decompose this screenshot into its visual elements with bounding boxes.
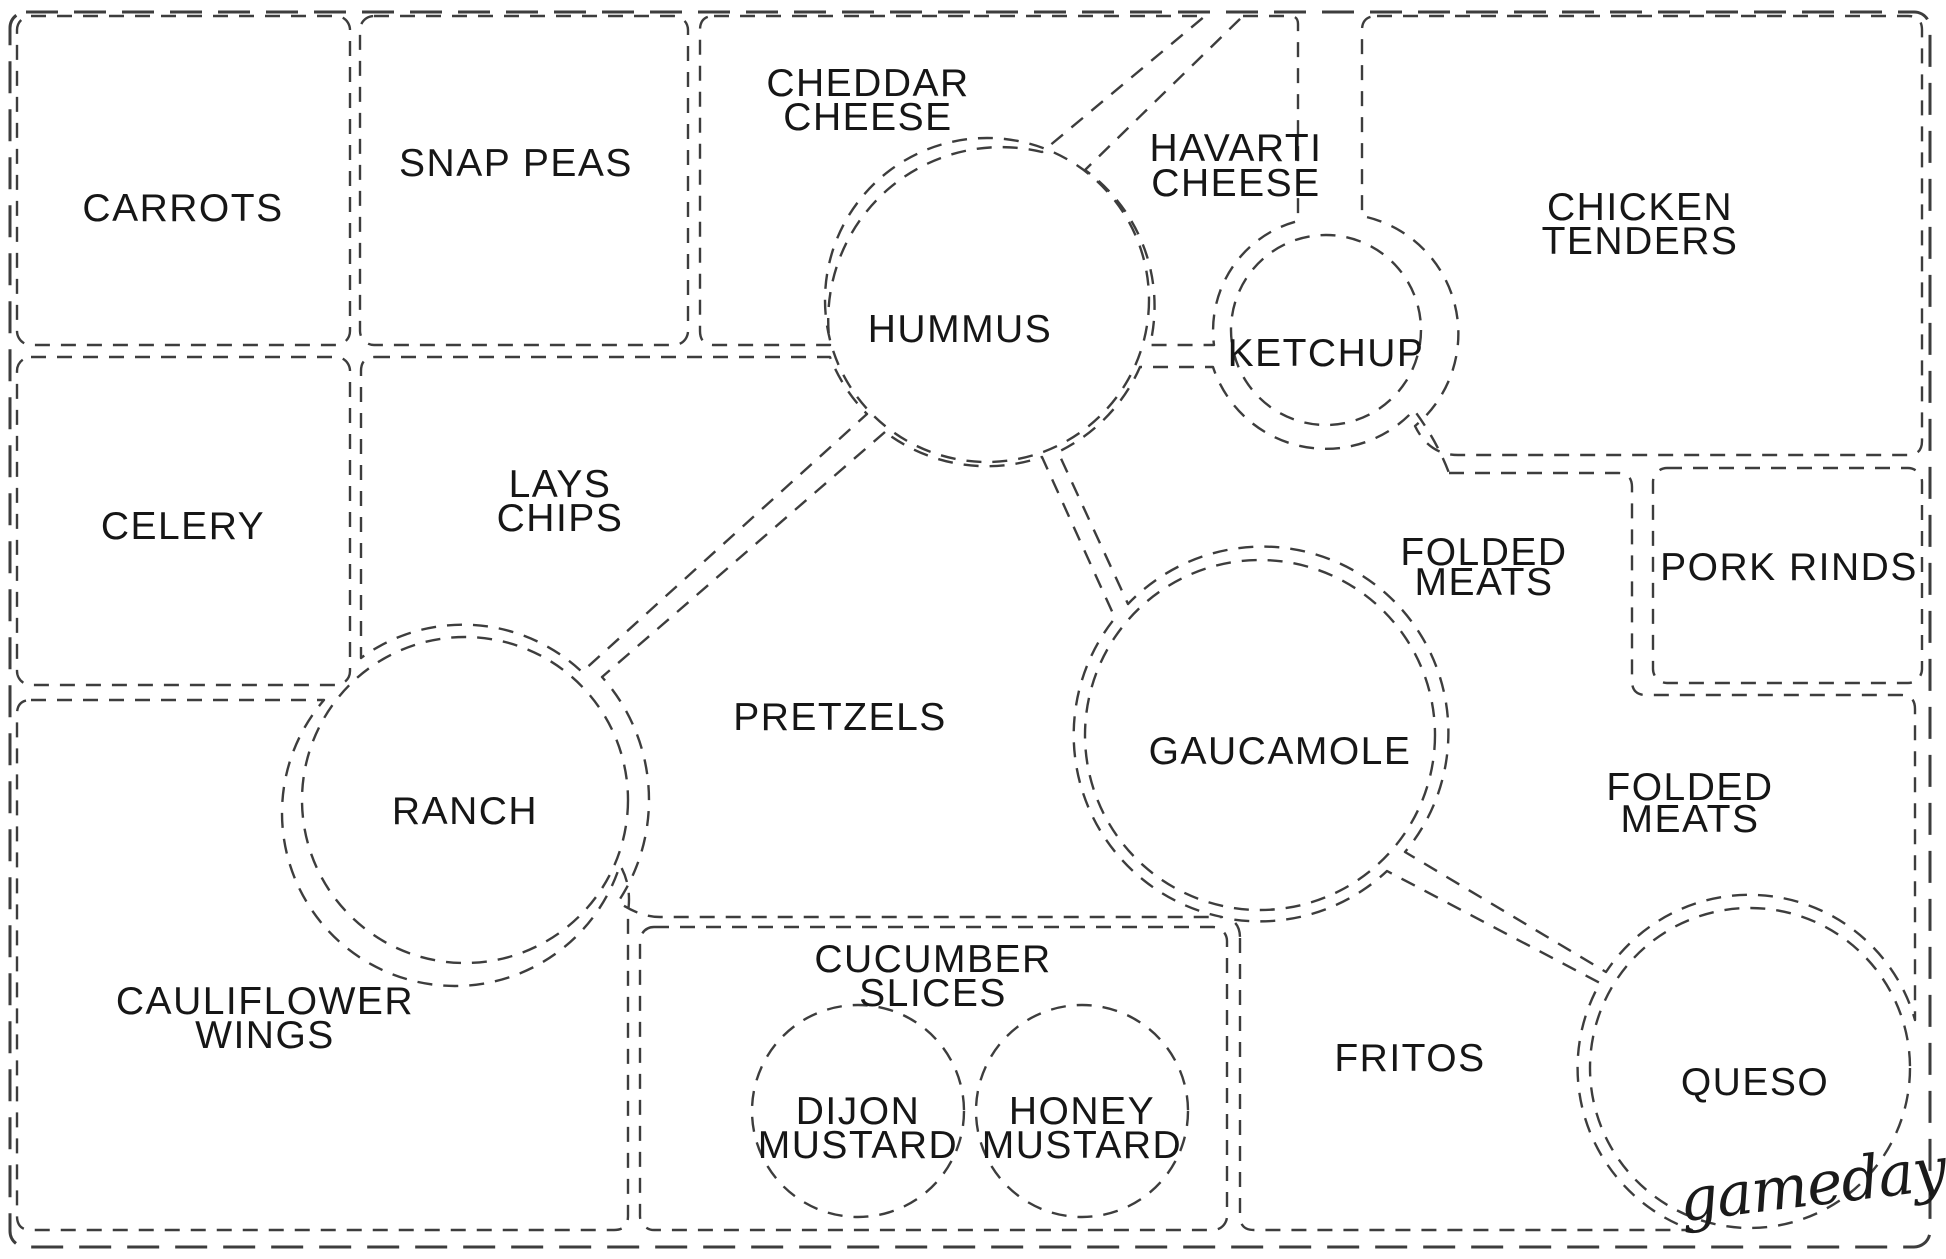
label-snap-peas: SNAP PEAS [399, 142, 633, 185]
label-folded-meats-lower-line2: MEATS [1621, 798, 1760, 841]
board-diagram: CARROTS SNAP PEAS CHEDDAR CHEESE HAVARTI… [0, 0, 1946, 1259]
label-carrots: CARROTS [82, 187, 283, 230]
label-cucumber-slices-line2: SLICES [859, 972, 1007, 1015]
region-carrots [17, 16, 350, 345]
label-havarti-cheese-line2: CHEESE [1151, 162, 1320, 205]
label-cheddar-cheese-line2: CHEESE [783, 96, 952, 139]
label-pretzels: PRETZELS [733, 696, 947, 739]
label-queso: QUESO [1681, 1061, 1829, 1104]
region-ketchup [1231, 235, 1421, 425]
region-hummus [825, 138, 1149, 462]
label-celery: CELERY [101, 505, 265, 548]
signature-gameday: gameday [1675, 1134, 1946, 1236]
label-guacamole: GAUCAMOLE [1149, 730, 1412, 773]
region-pretzels [602, 432, 1222, 917]
label-cauliflower-wings-line2: WINGS [195, 1014, 335, 1057]
label-honey-mustard-line2: MUSTARD [982, 1124, 1182, 1167]
label-chicken-tenders-line2: TENDERS [1542, 220, 1739, 263]
label-fritos: FRITOS [1334, 1037, 1485, 1080]
label-dijon-mustard-line2: MUSTARD [758, 1124, 958, 1167]
region-folded-meats [1058, 367, 1915, 1020]
label-hummus: HUMMUS [868, 308, 1052, 351]
gameday-snack-board-template: CARROTS SNAP PEAS CHEDDAR CHEESE HAVARTI… [0, 0, 1946, 1259]
label-lays-chips-line2: CHIPS [497, 497, 624, 540]
label-folded-meats-upper-line2: MEATS [1415, 561, 1554, 604]
label-pork-rinds: PORK RINDS [1660, 546, 1918, 589]
label-ketchup: KETCHUP [1228, 332, 1425, 375]
label-ranch: RANCH [392, 790, 538, 833]
region-cauliflower-wings [17, 700, 629, 1230]
